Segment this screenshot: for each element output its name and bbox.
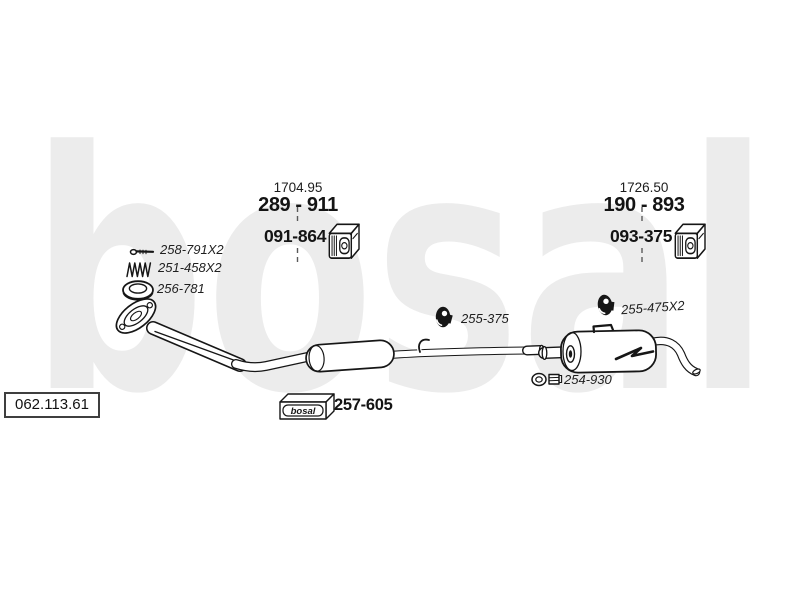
fitting-kit-box-icon: bosal [280,394,334,419]
bosal-logo-text: bosal [291,406,316,417]
center-clamp-part-number: 255-375 [461,311,509,326]
gasket-part-number: 256-781 [157,281,205,296]
front-pipe-part-number: 289 - 911 [250,194,346,217]
rubber-mount-icon-front [329,224,359,258]
bosal-watermark: bosal [30,82,770,466]
spring-part-number: 251-458X2 [158,260,222,275]
center-muffler [305,339,395,372]
fitting-kit-part-number: 257-605 [334,396,392,415]
tail-clamp-part-number: 254-930 [564,372,612,387]
exhaust-parts-diagram: bosal [0,0,800,600]
rear-muffler-part-number: 190 - 893 [596,194,692,217]
gasket-icon [123,281,153,300]
rubber-mount-icon-rear [675,224,705,258]
bolt-part-number: 258-791X2 [160,242,224,257]
reference-code-box: 062.113.61 [4,392,100,418]
rear-dimension-label: 1726.50 [615,180,673,195]
front-mount-part-number: 091-864 [264,226,326,247]
front-dimension-label: 1704.95 [269,180,327,195]
rear-mount-part-number: 093-375 [610,226,672,247]
